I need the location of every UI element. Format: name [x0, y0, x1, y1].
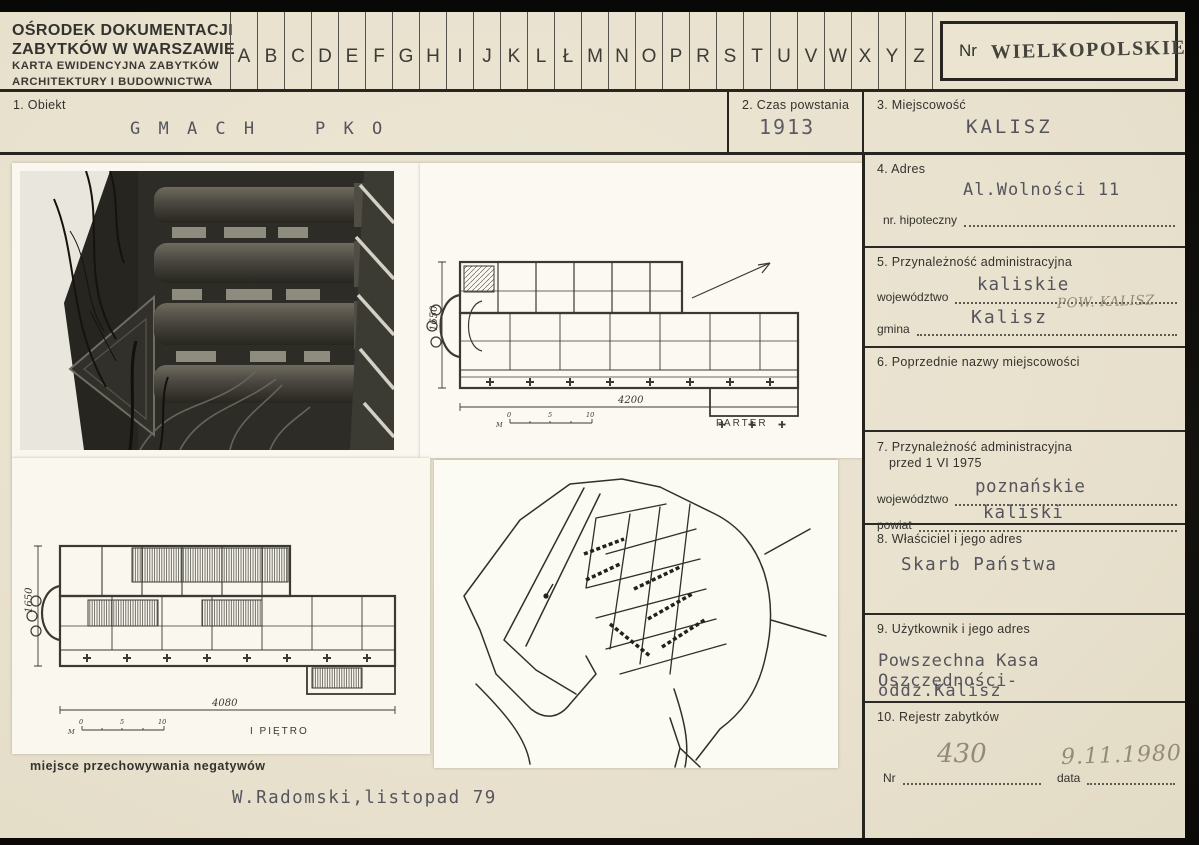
plan-parter-width-dim: 4200	[617, 395, 644, 406]
field-miejscowosc-label: 3. Miejscowość	[877, 98, 966, 112]
plan-parter-annotations: PARTER M 0 5 10	[495, 411, 768, 429]
rejestr-nr-value: 430	[937, 739, 987, 769]
field-rejestr: 10. Rejestr zabytków Nr 430 data 9.11.19…	[865, 703, 1185, 838]
field-obiekt-value: G M A C H P K O	[130, 119, 386, 139]
alphabet-letter: N	[609, 12, 636, 89]
alphabet-letter: Y	[879, 12, 906, 89]
field-wlasciciel-label: 8. Właściciel i jego adres	[877, 532, 1022, 546]
number-box: Nr WIELKOPOLSKIE	[940, 21, 1178, 81]
field-adres-value: Al.Wolności 11	[963, 180, 1120, 200]
building-photo	[12, 163, 420, 458]
plan-pietro-annotations: I PIĘTRO M 0 5 10	[67, 718, 309, 737]
pencil-annotation: POW. KALISZ	[1057, 292, 1155, 311]
alphabet-letter: K	[501, 12, 528, 89]
rejestr-data-line	[1087, 779, 1175, 785]
field-czas-powstania: 2. Czas powstania 1913	[727, 92, 862, 152]
alphabet-letter: D	[312, 12, 339, 89]
field-adres: 4. Adres Al.Wolności 11 nr. hipoteczny	[865, 155, 1185, 248]
card-type-line1: KARTA EWIDENCYJNA ZABYTKÓW	[12, 59, 226, 74]
negatives-note: miejsce przechowywania negatywów	[30, 759, 266, 773]
rejestr-data-label: data	[1057, 771, 1080, 785]
alphabet-letter: T	[744, 12, 771, 89]
field-rejestr-label: 10. Rejestr zabytków	[877, 710, 999, 724]
alphabet-index-strip: ABCDEFGHIJKLŁMNOPRSTUVWXYZ	[230, 12, 933, 89]
scale-unit: M	[67, 728, 75, 736]
issuing-organization: OŚRODEK DOKUMENTACJI ZABYTKÓW W WARSZAWI…	[0, 12, 230, 89]
field-uzytkownik: 9. Użytkownik i jego adres Powszechna Ka…	[865, 615, 1185, 703]
alphabet-letter: W	[825, 12, 852, 89]
fields-row-1: 1. Obiekt G M A C H P K O 2. Czas powsta…	[0, 92, 1185, 155]
org-name-line2: ZABYTKÓW W WARSZAWIE	[12, 40, 226, 59]
alphabet-letter: O	[636, 12, 663, 89]
gmina-label: gmina	[877, 322, 910, 336]
field-wlasciciel-value: Skarb Państwa	[901, 555, 1057, 575]
label-line1: 7. Przynależność administracyjna	[877, 439, 1072, 455]
label-line2: przed 1 VI 1975	[877, 455, 1072, 471]
floor-plan-pietro: 4080 1650 I PIĘTRO M 0 5 10	[12, 458, 430, 754]
field-przynaleznosc-label: 5. Przynależność administracyjna	[877, 255, 1072, 269]
field-miejscowosc-value: KALISZ	[966, 116, 1053, 138]
alphabet-letter: V	[798, 12, 825, 89]
alphabet-letter: G	[393, 12, 420, 89]
field-adres-label: 4. Adres	[877, 162, 925, 176]
region-stamp: WIELKOPOLSKIE	[991, 37, 1187, 65]
photo-illustration	[20, 171, 394, 450]
alphabet-letter: C	[285, 12, 312, 89]
wojewodztwo-value: kaliskie	[977, 275, 1069, 295]
field-czas-label: 2. Czas powstania	[742, 98, 849, 112]
author-date-note: W.Radomski,listopad 79	[232, 788, 497, 808]
scale-tick-10: 10	[586, 411, 594, 419]
map-streets	[464, 479, 826, 767]
nr-label: Nr	[959, 41, 977, 61]
alphabet-letter: B	[258, 12, 285, 89]
field-obiekt-label: 1. Obiekt	[13, 98, 66, 112]
field-przynaleznosc: 5. Przynależność administracyjna wojewód…	[865, 248, 1185, 348]
alphabet-letter: H	[420, 12, 447, 89]
building-photo-image	[20, 171, 394, 450]
rejestr-nr-label: Nr	[883, 771, 896, 785]
rejestr-nr-line	[903, 779, 1041, 785]
alphabet-letter: I	[447, 12, 474, 89]
scale-bar	[82, 726, 164, 730]
alphabet-letter: R	[690, 12, 717, 89]
gmina-line	[917, 330, 1177, 336]
rejestr-data-row: data	[1057, 771, 1175, 785]
alphabet-letter: Z	[906, 12, 933, 89]
card-type-line2: ARCHITEKTURY I BUDOWNICTWA	[12, 75, 226, 90]
field-uzytkownik-value-line2: oddz.Kalisz	[878, 681, 1002, 701]
map-object-marker	[543, 584, 553, 599]
alphabet-letter: A	[231, 12, 258, 89]
scale-tick-0: 0	[507, 411, 511, 419]
alphabet-letter: U	[771, 12, 798, 89]
plan-pietro-columns	[83, 654, 371, 662]
alphabet-letter: E	[339, 12, 366, 89]
field-czas-value: 1913	[759, 115, 815, 139]
plan-parter-height-dim: 1650	[429, 305, 440, 331]
field-miejscowosc: 3. Miejscowość KALISZ	[862, 92, 1185, 152]
number-box-area: Nr WIELKOPOLSKIE	[933, 12, 1185, 89]
plan-parter-outline	[427, 262, 798, 416]
alphabet-letter: Ł	[555, 12, 582, 89]
floor-plan-parter-drawing: 4200 1650 PARTER M 0 5 10	[420, 163, 862, 458]
plan-pietro-width-dim: 4080	[211, 698, 238, 709]
wojewodztwo-1975-value: poznańskie	[975, 477, 1085, 497]
plan-pietro-height-dim: 1650	[24, 587, 35, 613]
alphabet-letter: J	[474, 12, 501, 89]
location-map-drawing	[434, 460, 838, 768]
alphabet-letter: P	[663, 12, 690, 89]
plan-pietro-label: I PIĘTRO	[250, 726, 309, 737]
field-przynaleznosc-1975-label: 7. Przynależność administracyjna przed 1…	[877, 439, 1072, 472]
field-wlasciciel: 8. Właściciel i jego adres Skarb Państwa	[865, 525, 1185, 615]
field-przynaleznosc-1975: 7. Przynależność administracyjna przed 1…	[865, 432, 1185, 525]
gmina-value: Kalisz	[971, 307, 1048, 328]
field-uzytkownik-label: 9. Użytkownik i jego adres	[877, 622, 1030, 636]
org-name-line1: OŚRODEK DOKUMENTACJI	[12, 21, 226, 40]
alphabet-letter: F	[366, 12, 393, 89]
alphabet-letter: S	[717, 12, 744, 89]
field-poprzednie-nazwy-label: 6. Poprzednie nazwy miejscowości	[877, 355, 1080, 369]
scale-tick-5: 5	[548, 411, 552, 419]
hipoteczny-blank-line	[964, 221, 1175, 227]
heritage-record-card: OŚRODEK DOKUMENTACJI ZABYTKÓW W WARSZAWI…	[0, 12, 1185, 838]
field-obiekt: 1. Obiekt G M A C H P K O	[0, 92, 727, 152]
north-arrow-icon	[692, 263, 770, 298]
scale-tick-10: 10	[158, 718, 166, 726]
card-header: OŚRODEK DOKUMENTACJI ZABYTKÓW W WARSZAWI…	[0, 12, 1185, 92]
rejestr-nr-row: Nr	[883, 771, 1041, 785]
scale-tick-0: 0	[79, 718, 83, 726]
fields-column: 4. Adres Al.Wolności 11 nr. hipoteczny 5…	[862, 155, 1185, 838]
rejestr-data-value: 9.11.1980	[1061, 741, 1183, 770]
field-poprzednie-nazwy: 6. Poprzednie nazwy miejscowości	[865, 348, 1185, 432]
alphabet-letter: X	[852, 12, 879, 89]
floor-plan-parter: 4200 1650 PARTER M 0 5 10	[420, 163, 862, 458]
scale-bar	[510, 419, 592, 423]
scale-tick-5: 5	[120, 718, 124, 726]
hipoteczny-row: nr. hipoteczny	[883, 213, 1175, 227]
location-map	[434, 460, 838, 768]
powiat-value: kaliski	[983, 503, 1064, 523]
hipoteczny-label: nr. hipoteczny	[883, 213, 957, 227]
alphabet-letter: M	[582, 12, 609, 89]
scale-unit: M	[495, 421, 503, 429]
alphabet-letter: L	[528, 12, 555, 89]
floor-plan-pietro-drawing: 4080 1650 I PIĘTRO M 0 5 10	[12, 458, 430, 754]
plan-parter-label: PARTER	[716, 418, 768, 429]
wojewodztwo-label: województwo	[877, 290, 948, 304]
wojewodztwo-1975-label: województwo	[877, 492, 948, 506]
